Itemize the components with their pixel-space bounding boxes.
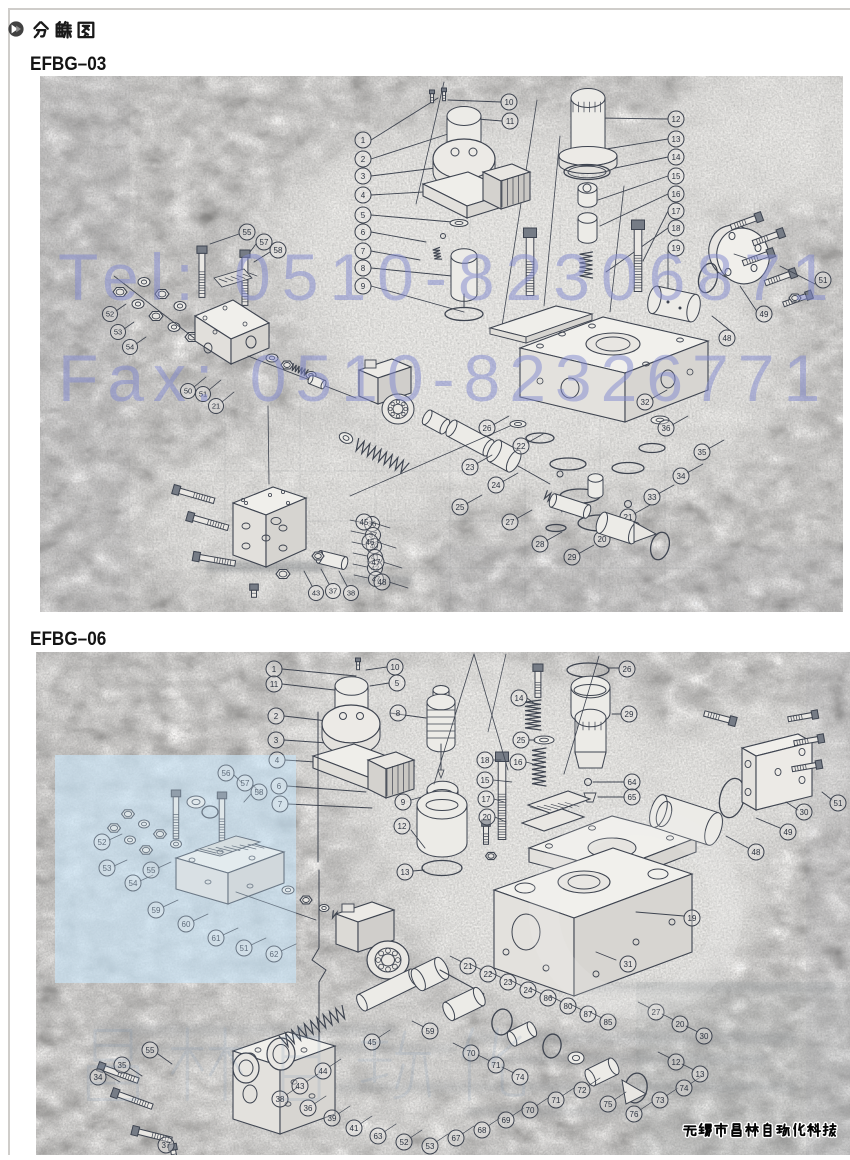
svg-text:9: 9 [401,798,406,807]
svg-text:71: 71 [552,1096,561,1105]
svg-text:51: 51 [834,799,843,808]
svg-text:17: 17 [482,795,491,804]
svg-text:26: 26 [623,665,632,674]
svg-text:72: 72 [578,1086,587,1095]
svg-text:20: 20 [598,535,607,544]
svg-text:22: 22 [517,442,526,451]
svg-text:85: 85 [604,1018,613,1027]
svg-text:27: 27 [506,518,515,527]
svg-text:Fax: 0510-82326771: Fax: 0510-82326771 [58,341,829,415]
svg-text:30: 30 [800,808,809,817]
svg-text:16: 16 [514,758,523,767]
svg-text:1: 1 [272,665,277,674]
svg-text:29: 29 [625,710,634,719]
svg-text:55: 55 [146,1046,155,1055]
svg-text:53: 53 [426,1142,435,1151]
svg-text:12: 12 [672,115,681,124]
svg-text:43: 43 [296,1082,305,1091]
svg-text:48: 48 [378,578,387,587]
svg-text:70: 70 [526,1106,535,1115]
svg-text:80: 80 [564,1002,573,1011]
svg-text:4: 4 [361,191,366,200]
svg-text:Tel: 0510-82306871: Tel: 0510-82306871 [58,240,840,314]
svg-text:2: 2 [274,712,279,721]
svg-text:48: 48 [752,848,761,857]
svg-text:2: 2 [361,155,366,164]
svg-text:25: 25 [456,503,465,512]
svg-text:23: 23 [504,978,513,987]
svg-text:26: 26 [483,424,492,433]
svg-text:5: 5 [361,211,366,220]
svg-text:53: 53 [114,328,122,337]
svg-text:21: 21 [464,962,473,971]
svg-text:13: 13 [401,868,410,877]
svg-text:10: 10 [391,663,400,672]
svg-text:5: 5 [395,679,400,688]
svg-text:12: 12 [672,1058,681,1067]
svg-text:47: 47 [372,558,381,567]
svg-text:23: 23 [466,463,475,472]
svg-text:18: 18 [672,224,681,233]
svg-text:6: 6 [361,228,366,237]
svg-text:38: 38 [347,589,355,598]
svg-text:36: 36 [662,424,671,433]
svg-text:74: 74 [516,1073,525,1082]
svg-text:19: 19 [688,914,697,923]
svg-text:11: 11 [506,117,515,126]
svg-text:17: 17 [672,207,681,216]
svg-text:16: 16 [672,190,681,199]
svg-text:12: 12 [398,822,407,831]
svg-text:20: 20 [676,1020,685,1029]
svg-text:3: 3 [274,736,279,745]
svg-text:73: 73 [656,1096,665,1105]
svg-text:36: 36 [304,1104,313,1113]
svg-text:55: 55 [243,228,252,237]
svg-text:18: 18 [481,756,490,765]
svg-text:52: 52 [400,1138,409,1147]
svg-text:69: 69 [502,1116,511,1125]
svg-text:13: 13 [696,1070,705,1079]
svg-text:87: 87 [584,1010,593,1019]
svg-text:13: 13 [672,135,681,144]
svg-text:75: 75 [604,1100,613,1109]
svg-text:37: 37 [329,587,337,596]
svg-text:3: 3 [361,172,366,181]
svg-text:65: 65 [628,793,637,802]
svg-text:59: 59 [426,1027,435,1036]
svg-text:14: 14 [672,153,681,162]
svg-text:34: 34 [677,472,686,481]
svg-text:63: 63 [374,1132,383,1141]
svg-text:29: 29 [568,553,577,562]
svg-text:24: 24 [492,481,501,490]
svg-text:15: 15 [481,776,490,785]
svg-text:20: 20 [483,813,492,822]
svg-text:49: 49 [784,828,793,837]
svg-text:43: 43 [312,589,320,598]
svg-text:46: 46 [366,538,375,547]
svg-text:86: 86 [544,994,553,1003]
svg-text:10: 10 [505,98,514,107]
svg-text:24: 24 [524,986,533,995]
svg-text:15: 15 [672,172,681,181]
svg-text:39: 39 [328,1114,337,1123]
svg-text:11: 11 [270,680,279,689]
svg-text:22: 22 [484,970,493,979]
svg-text:45: 45 [360,518,369,527]
svg-text:1: 1 [361,136,366,145]
svg-text:76: 76 [630,1110,639,1119]
svg-text:31: 31 [624,960,633,969]
svg-text:68: 68 [478,1126,487,1135]
svg-text:25: 25 [517,736,526,745]
svg-text:14: 14 [515,694,524,703]
svg-text:35: 35 [698,448,707,457]
svg-text:64: 64 [628,778,637,787]
svg-text:28: 28 [536,540,545,549]
svg-text:33: 33 [648,493,657,502]
svg-text:67: 67 [452,1134,461,1143]
svg-text:37: 37 [162,1141,171,1150]
svg-text:30: 30 [700,1032,709,1041]
svg-text:8: 8 [396,709,401,718]
svg-text:74: 74 [680,1084,689,1093]
svg-text:34: 34 [94,1073,103,1082]
svg-text:41: 41 [350,1124,359,1133]
